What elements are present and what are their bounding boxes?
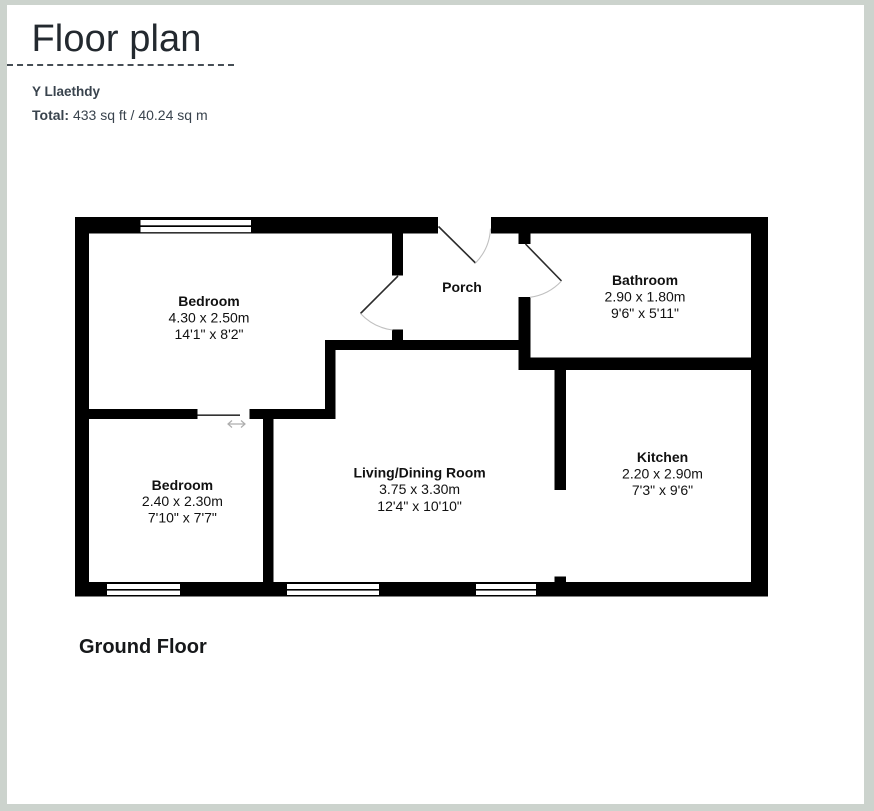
svg-text:Bedroom: Bedroom xyxy=(178,293,239,309)
svg-text:7'10" x 7'7": 7'10" x 7'7" xyxy=(148,510,217,526)
svg-text:9'6" x 5'11": 9'6" x 5'11" xyxy=(611,305,679,321)
svg-text:14'1" x 8'2": 14'1" x 8'2" xyxy=(175,326,244,342)
svg-text:2.40 x 2.30m: 2.40 x 2.30m xyxy=(142,493,223,509)
svg-text:Kitchen: Kitchen xyxy=(637,449,688,465)
svg-text:Bedroom: Bedroom xyxy=(152,477,213,493)
svg-text:3.75 x 3.30m: 3.75 x 3.30m xyxy=(379,481,460,497)
svg-text:Living/Dining Room: Living/Dining Room xyxy=(353,465,485,481)
svg-text:Bathroom: Bathroom xyxy=(612,272,678,288)
svg-text:Ground Floor: Ground Floor xyxy=(79,636,207,658)
svg-text:Porch: Porch xyxy=(442,279,482,295)
svg-text:2.90 x 1.80m: 2.90 x 1.80m xyxy=(605,289,686,305)
svg-text:7'3" x 9'6": 7'3" x 9'6" xyxy=(632,482,693,498)
svg-text:2.20 x 2.90m: 2.20 x 2.90m xyxy=(622,465,703,481)
svg-text:12'4" x 10'10": 12'4" x 10'10" xyxy=(377,498,462,514)
svg-text:4.30 x 2.50m: 4.30 x 2.50m xyxy=(169,309,250,325)
